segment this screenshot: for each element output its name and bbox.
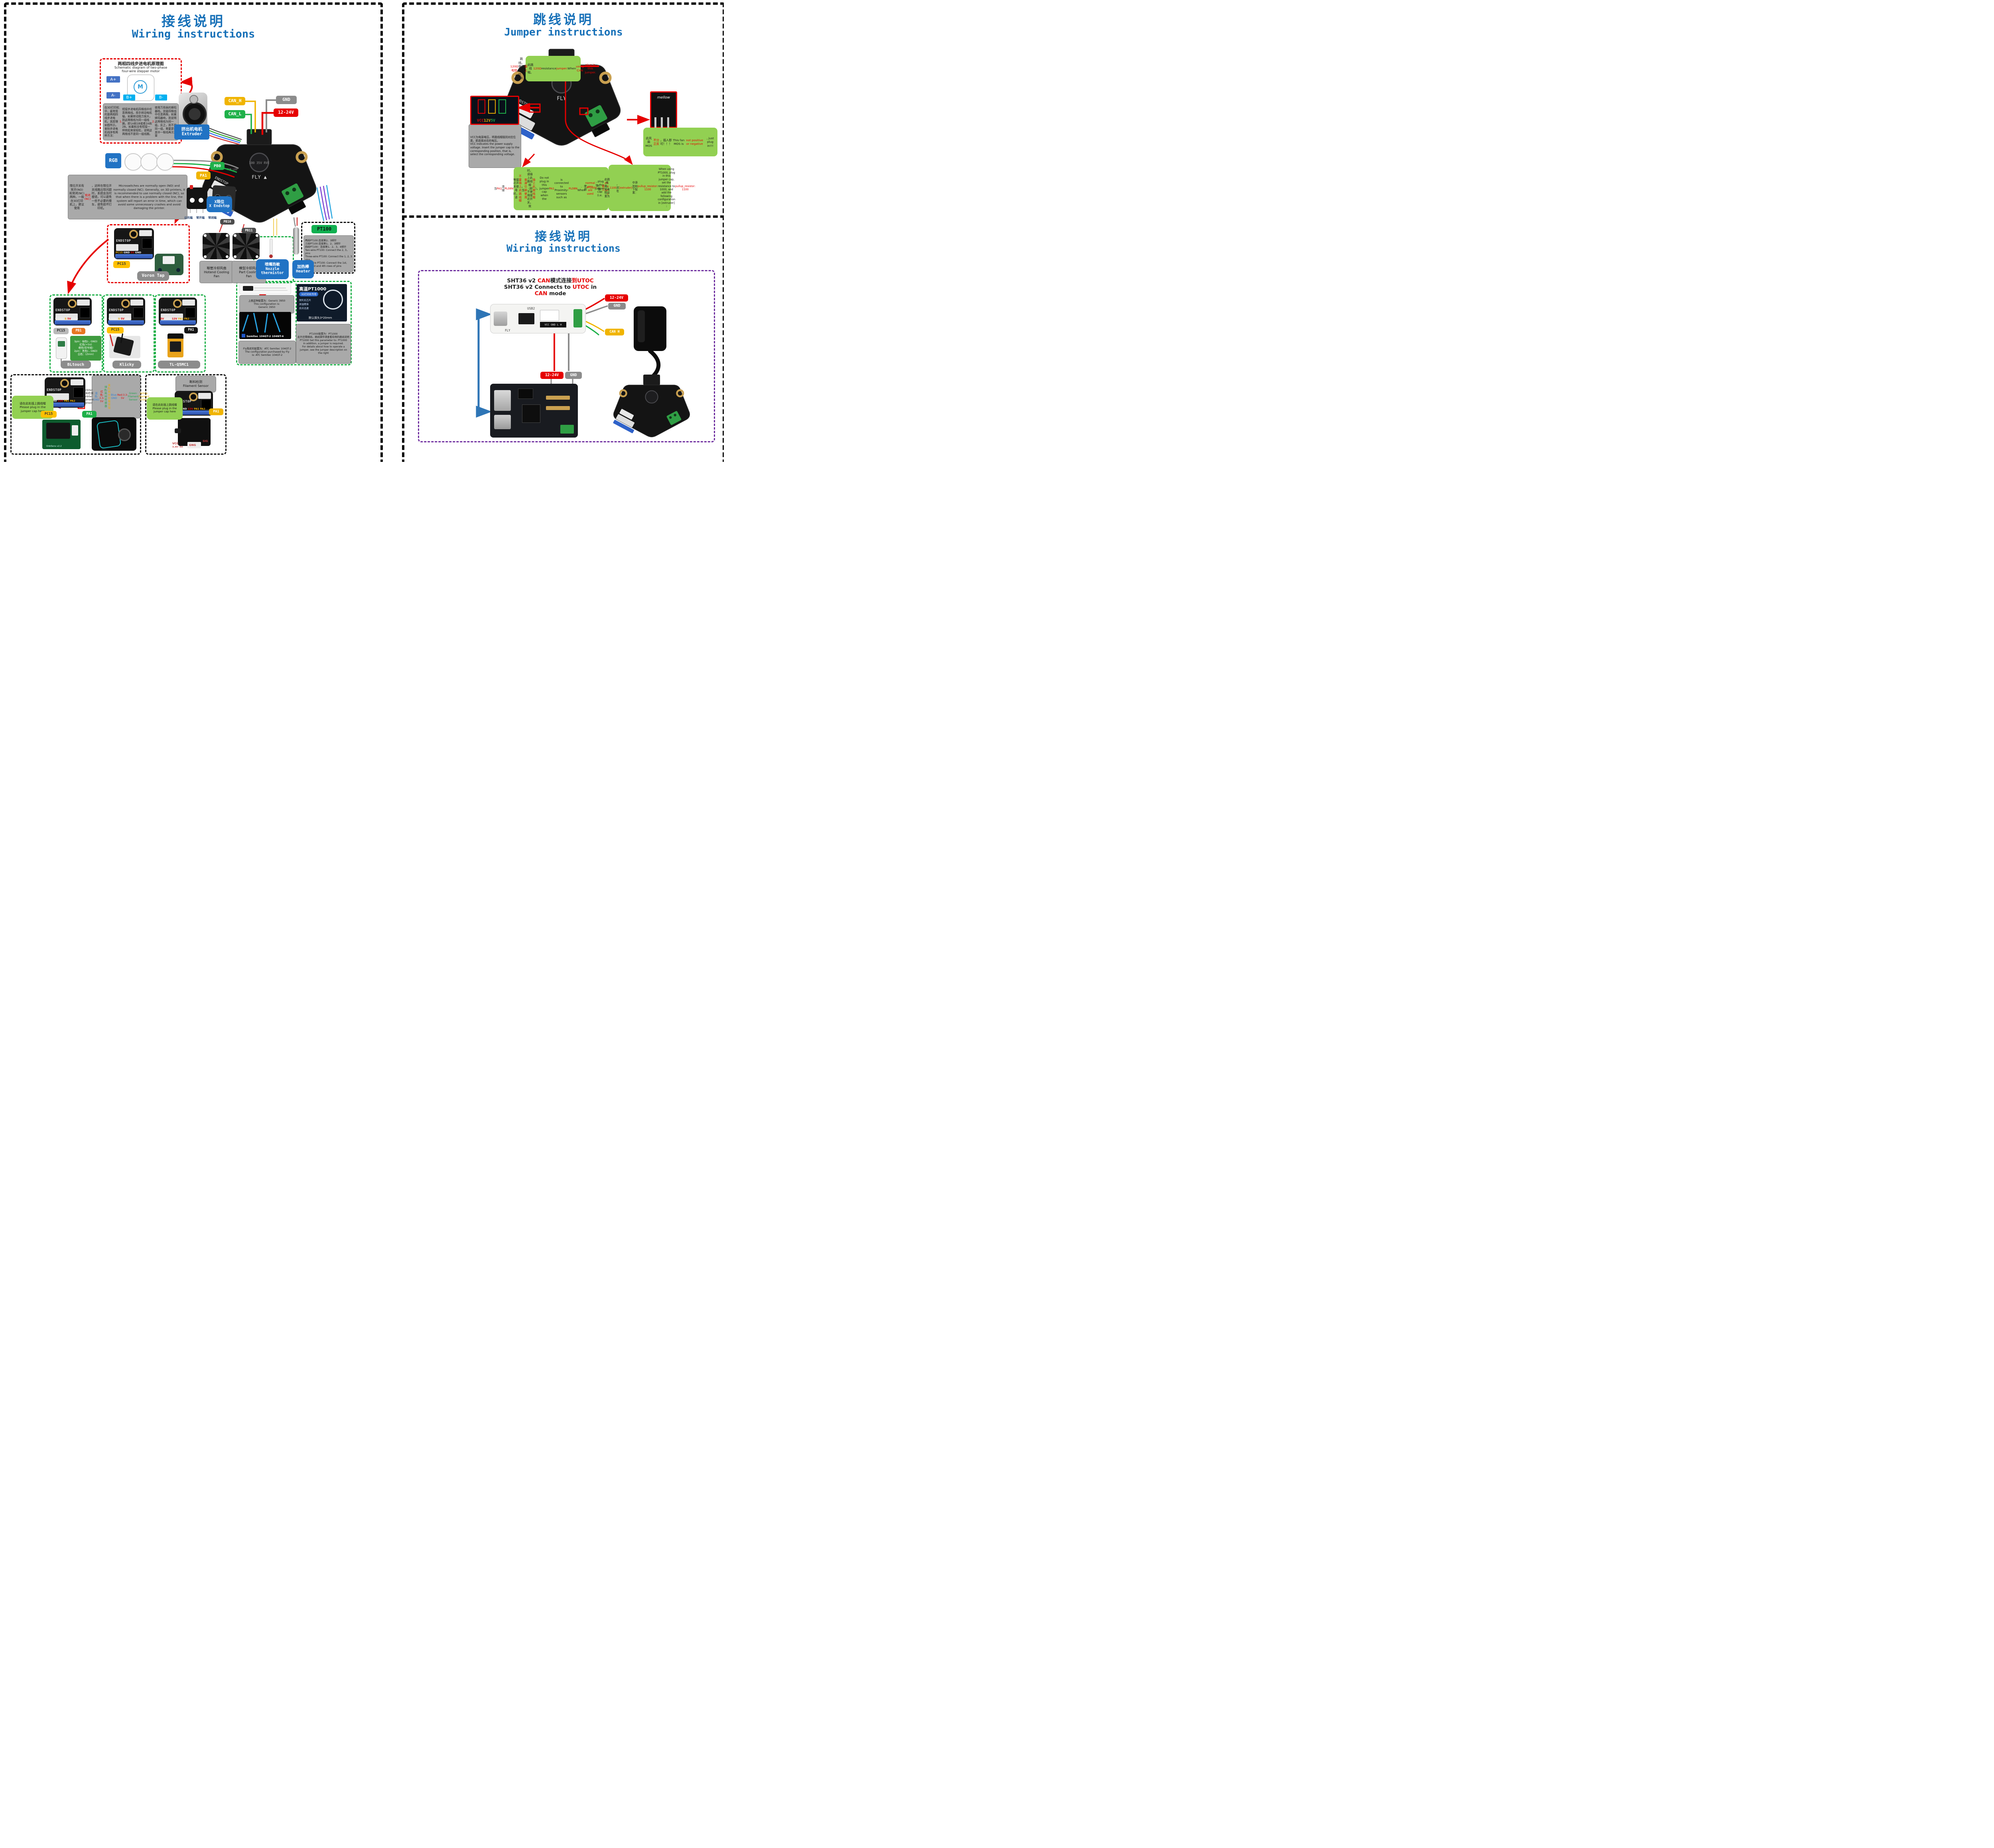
utoc-board-photo: [490, 384, 578, 438]
pt1000-product-title: 高温PT1000: [299, 286, 326, 292]
filament-jumper-note: 请在此处插上跳线帽 Please plug in the jumper cap …: [147, 397, 183, 420]
endstop-note: 限位开关有常开(NO)和常闭(NC)两种。一般在3D打印机上，建议使用常闭(NC…: [68, 175, 187, 219]
sensor-pin-sig: SIG: [203, 440, 208, 443]
heater-label: 加热棒 Heater: [292, 260, 314, 278]
pt1000-feature-1: 贺利氏芯片: [299, 298, 311, 302]
pa1-label-orbiter: PA1: [82, 411, 97, 418]
fly-silk: FLY: [505, 329, 510, 332]
can-h-label: CAN_H: [225, 97, 245, 105]
motor-shaft: [189, 95, 198, 104]
phase-a-plus: A+: [106, 76, 120, 83]
pt1000-feature-2: 测温精准: [299, 302, 309, 306]
pc15-label-bltouch: PC15: [53, 328, 69, 334]
motor-m-symbol: M: [134, 80, 147, 94]
endstop-silk: ENDSTOP: [47, 388, 61, 392]
r120-jumper-note: 120Ω电阻跳线。使用CAN时，请插上此跳线帽。 120Ω resistance…: [526, 56, 581, 81]
proximity-switch-photo: [167, 333, 183, 357]
pc15-label-klicky: PC15: [107, 327, 124, 333]
mos-note: 此风扇MOS不分正反，插入即可！！！ This fan MOS is not p…: [643, 128, 717, 156]
hotend-fan-photo: [203, 233, 230, 259]
semitec-caption: Semitec 104GT-2 104NT-4: [246, 335, 284, 338]
extruder-label: 挤出机电机 Extruder: [174, 124, 209, 140]
orbisens-pcb-photo: OrbiSens v2.2: [42, 420, 81, 449]
pt1000-feature-3: 反应迅速: [299, 306, 309, 310]
toolhead-board-can: [606, 374, 698, 439]
fly-config-note: Fly购买的配置为：ATC Semitec 104GT-2 The config…: [238, 341, 296, 364]
endstop-silk: ENDSTOP: [161, 308, 175, 312]
pt1000-product-photo: 高温PT1000 3D打印机专用 贺利氏芯片 测温精准 反应迅速 默认探头3*2…: [297, 284, 347, 321]
pc15-label-orbiter: PC15: [41, 411, 57, 418]
generic3950-photo: [239, 283, 291, 294]
can-title-zh: 接线说明: [404, 227, 723, 244]
can-cable-plug-photo: [634, 306, 666, 351]
voron-tap-label: Voron Tap: [137, 271, 169, 281]
can-h-tag: CAN H: [605, 329, 624, 335]
endstop-board-photo-tl: ENDSTOP 5V GND 12V PA1 PA2: [159, 298, 197, 325]
rgb-led-2: [140, 153, 158, 171]
endstop-board-photo-voron: ENDSTOP PC15 GND 5V GND: [114, 228, 154, 259]
pt1000-config-note: PT1000配置为：PT1000 此外还需跳线，跳线操作请查看右侧的跳线说明 P…: [296, 324, 351, 364]
sensor-pin-gng: GNG: [189, 444, 196, 447]
pa1-label-filament: PA1: [209, 408, 223, 415]
fan0-pin-label: PB10: [220, 219, 234, 225]
pin-labels: PC15 GND 5V GND: [116, 251, 141, 254]
microswitch-photo-1: [187, 187, 207, 209]
filament-sensor-title: 断料检测 Filament Sensor: [175, 376, 216, 392]
mellow-logo: mellow: [651, 96, 676, 100]
can-power-bottom-label: 12-24V: [540, 372, 564, 379]
can-power-top-label: 12-24V: [605, 294, 628, 302]
pb0-label: PB0: [210, 162, 225, 170]
endstop-silk: ENDSTOP: [109, 308, 124, 312]
pin-normally-open: 常开端: [196, 216, 205, 220]
wiring-instructions-sheet: 接线说明 Wiring instructions 两相四线步进电机原理图 Sch…: [0, 0, 724, 462]
vcc-jumper-photo: VCC12V5V: [470, 96, 519, 125]
bltouch-wire-note: 3pin：绿色(-, GND) 红色(+5V) 橙色(信号线) 2pin：黑色(…: [70, 336, 101, 361]
pin-labels: S GND S 5V GND: [55, 318, 78, 320]
rgb-label: RGB: [105, 153, 121, 168]
jumper-title-en: Jumper instructions: [404, 26, 723, 38]
can-mode-header: SHT36 v2 CAN模式连接到UTOC SHT36 v2 Connects …: [463, 276, 638, 297]
phase-b-minus: B-: [155, 95, 167, 101]
usb2-silk: USB2: [527, 307, 535, 310]
pt1000-jumper-note: 使用PT1000时，需插上此跳线帽，将电阻设置为1100，并在[extruder…: [609, 165, 671, 211]
phase-b-plus: B+: [123, 95, 135, 101]
cap-silk: 100 35V RVE: [249, 161, 269, 165]
sensor-pin-vcc-range: 3.3V~5V: [172, 446, 183, 448]
pc15-label-voron: PC15: [113, 261, 130, 268]
semitec-photo: Semitec 104GT-2 104NT-4: [239, 312, 291, 339]
endstop-board-photo-bltouch: ENDSTOP S GND S 5V GND: [53, 298, 92, 325]
fly-logo: FLY: [557, 96, 566, 102]
phase-a-minus: A-: [106, 92, 120, 99]
pin-common: 公共端: [184, 216, 193, 220]
can-title-en: Wiring instructions: [404, 243, 723, 254]
hotend-fan-label: 喉管冷却风扇 Hotend Cooling Fan: [199, 261, 234, 283]
left-title-en: Wiring instructions: [6, 28, 380, 40]
can-gnd-bottom-label: GND: [565, 372, 582, 379]
thermistor-photo: [270, 239, 273, 255]
orbiter-wire-note: Orbiter断料检测 Orbiter Filament Sensor 蓝色: …: [92, 375, 140, 418]
x-endstop-label: X限位 X Endstop: [207, 196, 232, 212]
heater-photo: [293, 227, 299, 254]
fly-logo: FLY ▲: [252, 174, 267, 180]
fan1-pin-label: PB11: [242, 228, 256, 233]
pt1000-probe-size: 默认探头3*20mm: [309, 316, 332, 320]
vcc-pin-row: VCC12V5V: [477, 118, 495, 123]
klicky-photo: [109, 336, 140, 358]
endstop-silk: ENDSTOP: [116, 239, 131, 243]
endstop-silk: ENDSTOP: [55, 308, 70, 312]
pin-labels: S GND S 5V GND: [108, 318, 131, 320]
stepper-title-en: Schematic diagram of two-phase four-wire…: [101, 66, 181, 73]
jumper-title-zh: 跳线说明: [404, 10, 723, 28]
orbiter-extruder-photo: [92, 417, 136, 451]
bltouch-probe-photo: [56, 337, 67, 359]
orbisens-silk: OrbiSens v2.2: [46, 445, 62, 448]
generic3950-note: 上图这种配置为：Generic 3950 This configuration …: [239, 295, 294, 314]
sensor-pin-vcc: VCC3.3V~5V: [172, 442, 183, 448]
pin-labels: 5V GND 12V PA1 PA2: [160, 318, 189, 320]
power-label: 12-24V: [274, 108, 298, 117]
klicky-label: Klicky: [112, 361, 141, 369]
pa1-label: PA1: [196, 172, 211, 179]
mos-module-photo: mellow: [650, 91, 677, 128]
nozzle-thermistor-label: 喷嘴热敏 Nozzle thermistor: [256, 259, 289, 279]
rgb-led-3: [156, 153, 174, 171]
pt100-label: PT100: [311, 225, 337, 233]
part-fan-photo: [233, 233, 260, 259]
endstop-board-photo-klicky: ENDSTOP S GND S 5V GND: [107, 298, 145, 325]
sht36-terminal-pins: VCC GND L H: [540, 322, 566, 327]
stepper-motor-photo: [179, 93, 207, 129]
tl-q5mc1-label: TL-Q5MC1: [158, 361, 200, 369]
pa1-label-tl: PA1: [184, 327, 198, 333]
left-title-zh: 接线说明: [6, 10, 380, 30]
can-l-label: CAN_L: [225, 110, 245, 118]
bltouch-label: BLtouch: [61, 361, 91, 369]
gnd-label: GND: [276, 96, 297, 104]
stepper-schematic-box: 两相四线步进电机原理图 Schematic diagram of two-pha…: [100, 58, 182, 144]
can-gnd-top-label: GND: [608, 303, 626, 310]
stepper-diagram: M A+ A- B+ B-: [105, 75, 177, 102]
sht36-board-photo: USB2 VCC GND L H FLY: [490, 304, 586, 333]
pb1-label: PB1: [72, 328, 85, 334]
vcc-note: VCC为电源电压，将跳线帽插到对应位置，即选择对应的电压。 VCC indica…: [469, 124, 521, 168]
rgb-led-silk: RGB LED: [227, 168, 238, 171]
pt1000-product-sub: 3D打印机专用: [299, 292, 318, 296]
rgb-led-1: [124, 153, 142, 171]
motor-body: [183, 102, 207, 126]
pin-normally-closed: 常闭端: [208, 216, 217, 220]
stepper-notes: 在3D打印机中，最常用的是两相四线步进电机，其原理如图所示。鉴别步进电机线序有两…: [103, 103, 179, 140]
